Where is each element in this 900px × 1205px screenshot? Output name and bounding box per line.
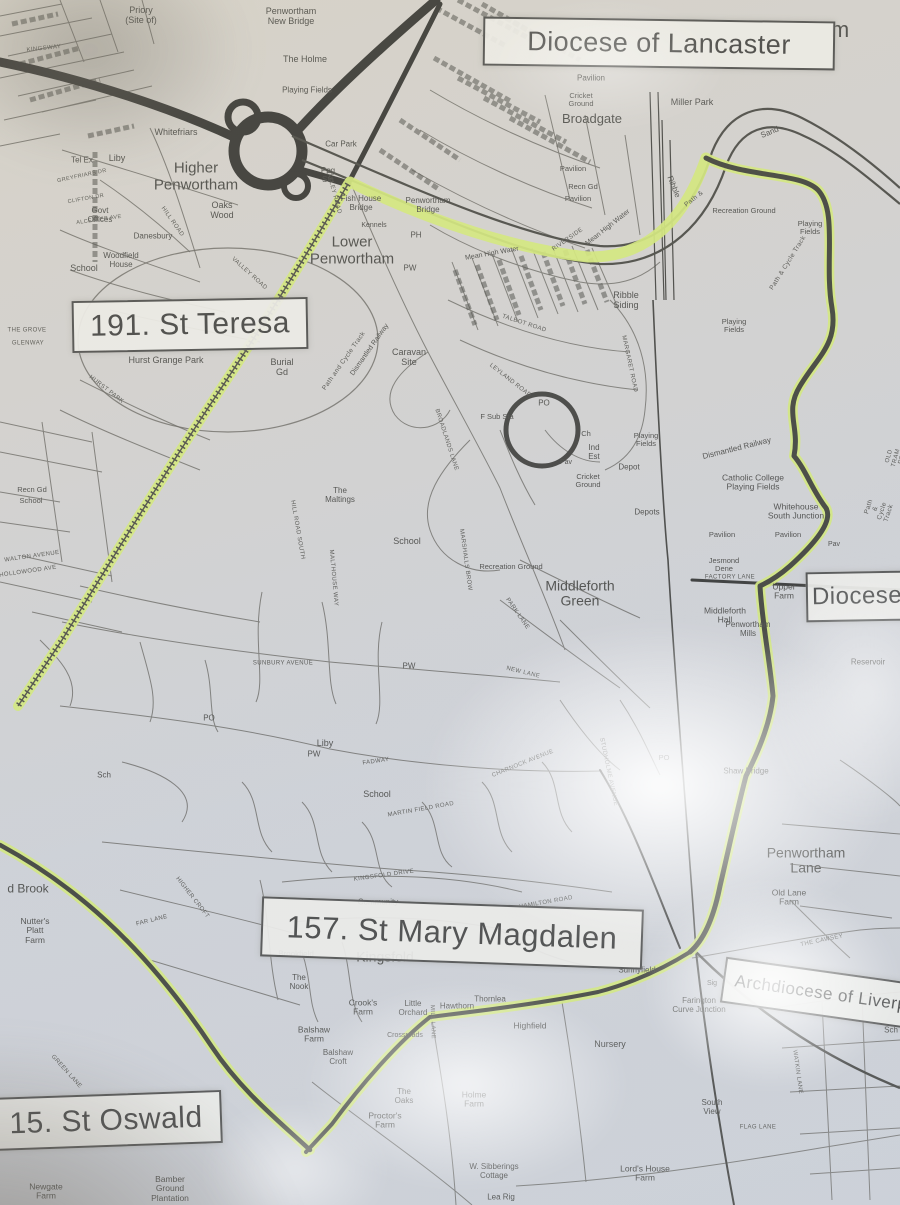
map-label: The Oaks <box>395 1088 414 1106</box>
map-photo: Priory (Site of)Penwortham New BridgeThe… <box>0 0 900 1205</box>
map-label: SUNBURY AVENUE <box>253 661 313 668</box>
map-label: Pavilion <box>577 75 605 84</box>
map-label: Balshaw Farm <box>298 1026 330 1045</box>
map-label: Newgate Farm <box>29 1183 63 1202</box>
map-label: Pavilion <box>709 531 735 539</box>
map-label: School <box>393 537 421 547</box>
map-label: Lord's House Farm <box>620 1165 670 1184</box>
map-label: Old Lane Farm <box>772 889 807 908</box>
map-label: Jesmond Dene <box>709 557 739 574</box>
map-label: Hurst Grange Park <box>128 356 203 366</box>
map-label: Kennels <box>361 222 386 230</box>
map-label: MILL LANE <box>428 1005 436 1039</box>
map-label: Sch <box>97 772 111 781</box>
map-label: Balshaw Croft <box>323 1049 353 1067</box>
map-label: Burial Gd <box>270 358 293 378</box>
map-label: Miller Park <box>671 98 714 108</box>
map-label: Pavilion <box>560 165 586 173</box>
map-label: Sch <box>884 1027 898 1036</box>
parish-title: 15. St Oswald <box>0 1090 223 1151</box>
map-label: PH <box>410 232 421 241</box>
boundary-ink-south <box>306 952 690 1152</box>
map-label: Penwortham Mills <box>726 621 771 639</box>
map-label: Liby <box>109 154 126 164</box>
map-label: The Nook <box>290 974 309 992</box>
map-label: Recn Gd <box>568 183 598 191</box>
map-label: Recreation Ground <box>712 207 775 215</box>
map-label: Ind Est <box>588 444 600 462</box>
map-label: Cricket Ground <box>575 473 600 490</box>
map-label: Broadgate <box>562 112 622 126</box>
map-label: Depots <box>634 509 659 518</box>
map-label: PW <box>403 663 416 672</box>
parish-title: Diocese of Lancaster <box>483 17 836 71</box>
map-label: Depot <box>618 464 639 473</box>
map-label: The Maltings <box>325 487 355 505</box>
map-label: FLAG LANE <box>740 1125 777 1132</box>
map-label: Playing Fields <box>722 318 747 335</box>
map-label: Car Park <box>325 141 357 150</box>
map-label: Crook's Farm <box>349 999 378 1018</box>
map-label: Holme Farm <box>462 1091 487 1110</box>
map-label: Woodfield House <box>103 252 138 270</box>
map-label: Highfield <box>513 1021 546 1030</box>
map-label: Recreation Ground <box>479 563 542 571</box>
map-label: Lea Rig <box>487 1194 515 1203</box>
map-label: Crossroads <box>387 1032 423 1040</box>
parish-title: Diocese of S <box>806 570 900 623</box>
map-label: Nursery <box>594 1040 626 1050</box>
map-label: Priory (Site of) <box>125 6 157 26</box>
map-label: PW <box>404 265 417 274</box>
map-label: Little Orchard <box>399 1000 428 1018</box>
map-label: Playing Fields <box>282 87 332 96</box>
map-label: School <box>70 264 98 274</box>
map-label: Thornlea <box>474 996 506 1005</box>
railway <box>650 92 900 1205</box>
map-label: Middleforth Green <box>545 579 614 610</box>
map-label: Nutter's Platt Farm <box>20 917 49 945</box>
map-label: Penwortham New Bridge <box>266 7 317 27</box>
street-map <box>0 0 900 1205</box>
map-label: Fish House Bridge <box>341 195 381 213</box>
map-label: Bamber Ground Plantation <box>151 1175 189 1203</box>
map-label: Caravan Site <box>392 348 426 368</box>
map-label: Pav <box>828 541 840 549</box>
map-label: Recn Gd <box>17 486 47 494</box>
map-label: School <box>20 497 43 505</box>
map-label: Ch <box>581 430 591 438</box>
map-label: Tel Ex <box>71 157 93 166</box>
map-label: Cricket Ground <box>568 92 593 109</box>
map-label: Liby <box>317 739 334 749</box>
map-label: PW <box>308 751 321 760</box>
map-label: School <box>363 790 391 800</box>
map-label: Oaks Wood <box>210 201 233 221</box>
map-label: Pavilion <box>775 531 801 539</box>
map-label: PO <box>203 715 215 724</box>
map-label: Penwortham Lane <box>767 846 846 877</box>
map-label: Hawthorn <box>440 1003 474 1012</box>
map-label: Pav <box>560 459 572 467</box>
map-label: PO <box>659 754 670 762</box>
map-label: Proctor's Farm <box>368 1112 401 1131</box>
map-label: Catholic College Playing Fields <box>722 474 784 493</box>
map-label: Farington Curve Junction <box>672 997 725 1015</box>
map-label: W. Sibberings Cottage <box>469 1163 518 1181</box>
map-label: Pavilion <box>565 195 591 203</box>
map-label: South View <box>702 1099 723 1117</box>
map-label: Govt Offices <box>88 207 113 225</box>
map-label: Reservoir <box>851 659 885 668</box>
map-label: FACTORY LANE <box>705 575 755 582</box>
map-label: Lower Penwortham <box>310 235 394 268</box>
map-label: Higher Penwortham <box>154 161 238 194</box>
map-label: Whitefriars <box>154 128 197 138</box>
map-label: Shaw Bridge <box>723 768 768 777</box>
map-label: d Brook <box>7 882 48 895</box>
map-label: Sig <box>707 980 717 988</box>
map-label: Ribble Siding <box>613 291 639 311</box>
map-label: Upper Farm <box>772 583 795 602</box>
map-label: PO <box>538 400 550 409</box>
parish-title: 191. St Teresa <box>72 297 309 353</box>
map-label: Danesbury <box>134 233 173 242</box>
map-label: GLENWAY <box>12 341 44 348</box>
map-label: Playing Fields <box>634 432 659 449</box>
map-label: THE GROVE <box>8 328 47 335</box>
map-label: Penwortham Bridge <box>406 197 451 215</box>
map-label: F Sub Sta <box>480 413 513 421</box>
map-label: Whitehouse South Junction <box>768 503 824 522</box>
map-label: The Holme <box>283 55 327 65</box>
